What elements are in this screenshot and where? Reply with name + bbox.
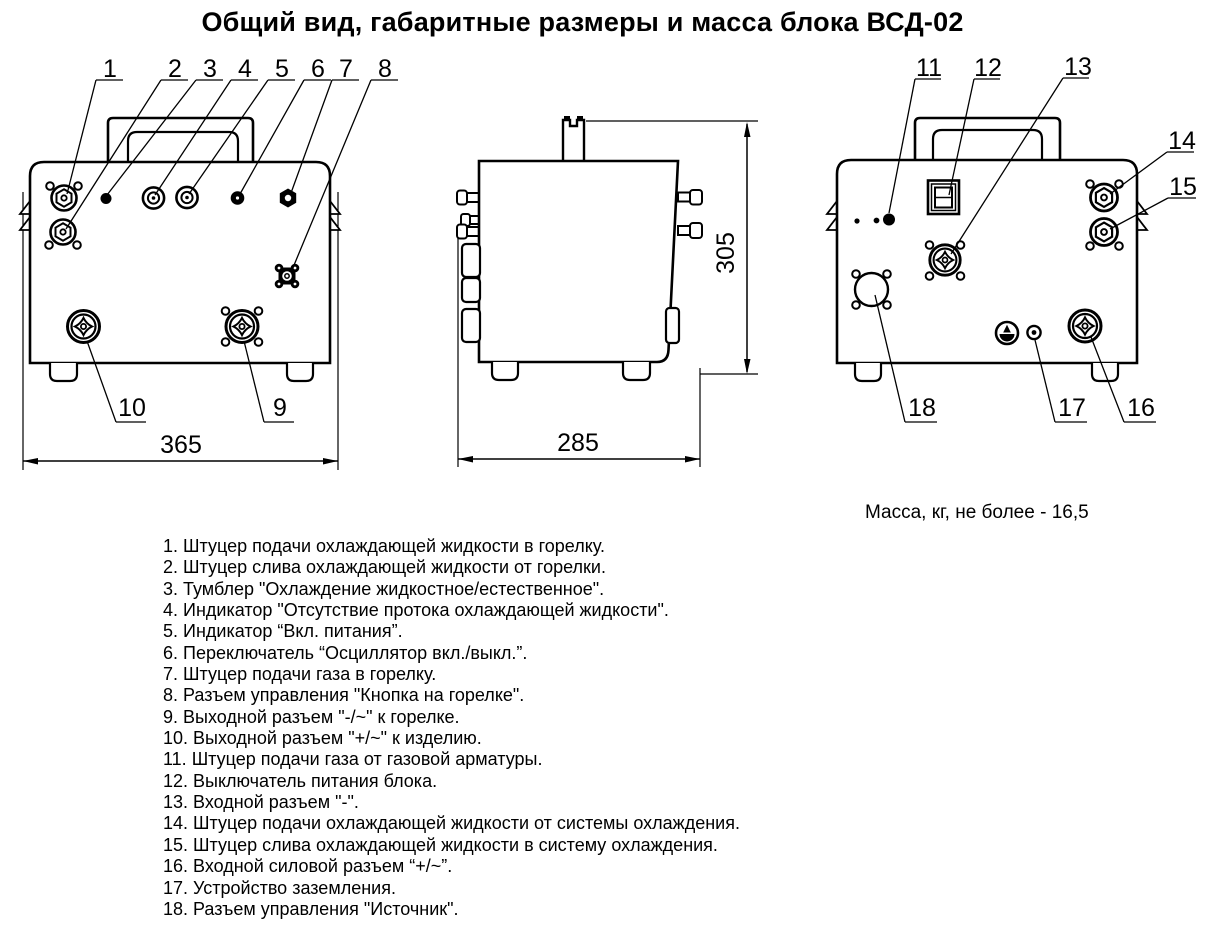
flow-indicator	[143, 187, 164, 208]
legend-item: 9. Выходной разъем "-/~" к горелке.	[163, 707, 740, 728]
output-connector-plus	[68, 311, 100, 343]
side-right-fittings	[678, 190, 702, 238]
callout-16: 16	[1127, 394, 1155, 422]
source-control-connector	[852, 270, 891, 309]
callout-15: 15	[1169, 173, 1197, 201]
side-left-panels	[462, 244, 480, 342]
legend-item: 16. Входной силовой разъем “+/~”.	[163, 856, 740, 877]
callout-10: 10	[118, 394, 146, 422]
callout-1: 1	[103, 55, 117, 83]
callout-7: 7	[339, 55, 353, 83]
ground-stud	[1027, 326, 1040, 339]
callout-12: 12	[974, 54, 1002, 82]
legend-item: 2. Штуцер слива охлаждающей жидкости от …	[163, 557, 740, 578]
dimension-305: 305	[712, 122, 751, 374]
power-switch	[928, 181, 959, 215]
legend-item: 6. Переключатель “Осциллятор вкл./выкл.”…	[163, 643, 740, 664]
side-right-panel	[666, 308, 679, 343]
legend-item: 4. Индикатор "Отсутствие протока охлажда…	[163, 600, 740, 621]
callout-4: 4	[238, 55, 252, 83]
legend-item: 10. Выходной разъем "+/~" к изделию.	[163, 728, 740, 749]
oscillator-switch	[231, 191, 245, 205]
feet-front	[50, 363, 313, 381]
callout-13: 13	[1064, 53, 1092, 81]
side-body	[479, 161, 678, 362]
legend-item: 18. Разъем управления "Источник".	[163, 899, 740, 920]
callout-9: 9	[273, 394, 287, 422]
callout-17: 17	[1058, 394, 1086, 422]
page: Общий вид, габаритные размеры и масса бл…	[0, 0, 1221, 940]
technical-drawing: 1 2 3 4 5 6 7 8 10 9 365	[0, 0, 1221, 530]
legend-item: 7. Штуцер подачи газа в горелку.	[163, 664, 740, 685]
callout-5: 5	[275, 55, 289, 83]
input-power-connector	[1069, 310, 1101, 342]
front-view: 1 2 3 4 5 6 7 8 10 9 365	[20, 55, 398, 470]
legend-item: 14. Штуцер подачи охлаждающей жидкости о…	[163, 813, 740, 834]
grounding-device	[996, 322, 1018, 344]
side-view: 305 285	[457, 116, 758, 467]
legend-item: 11. Штуцер подачи газа от газовой армату…	[163, 749, 740, 770]
input-connector-minus	[926, 241, 965, 280]
dimension-side-height: 305	[712, 232, 740, 274]
legend-item: 13. Входной разъем "-".	[163, 792, 740, 813]
output-connector-minus	[222, 307, 263, 346]
handle-side	[563, 116, 584, 161]
callout-2: 2	[168, 55, 182, 83]
dimension-side-depth: 285	[557, 429, 599, 457]
power-indicator	[176, 187, 197, 208]
handle-back	[915, 118, 1060, 160]
cooling-mode-toggle	[101, 193, 112, 204]
dimension-285: 285	[458, 429, 700, 463]
legend-item: 1. Штуцер подачи охлаждающей жидкости в …	[163, 536, 740, 557]
legend-list: 1. Штуцер подачи охлаждающей жидкости в …	[163, 536, 740, 920]
legend-item: 17. Устройство заземления.	[163, 878, 740, 899]
side-left-fittings	[457, 191, 480, 239]
callout-8: 8	[378, 55, 392, 83]
mass-note: Масса, кг, не более - 16,5	[865, 502, 1089, 524]
dimension-front-width: 365	[160, 431, 202, 459]
legend-item: 12. Выключатель питания блока.	[163, 771, 740, 792]
callout-11: 11	[916, 54, 942, 82]
back-view: 11 12 13 14 15 18 17 16	[827, 53, 1197, 422]
legend-item: 3. Тумблер "Охлаждение жидкостное/естест…	[163, 579, 740, 600]
callout-14: 14	[1168, 127, 1196, 155]
legend-item: 15. Штуцер слива охлаждающей жидкости в …	[163, 835, 740, 856]
legend-item: 5. Индикатор “Вкл. питания”.	[163, 621, 740, 642]
callout-3: 3	[203, 55, 217, 83]
feet-side	[492, 362, 650, 380]
dimension-365: 365	[23, 431, 338, 465]
legend-item: 8. Разъем управления "Кнопка на горелке"…	[163, 685, 740, 706]
callout-6: 6	[311, 55, 325, 83]
callout-18: 18	[908, 394, 936, 422]
